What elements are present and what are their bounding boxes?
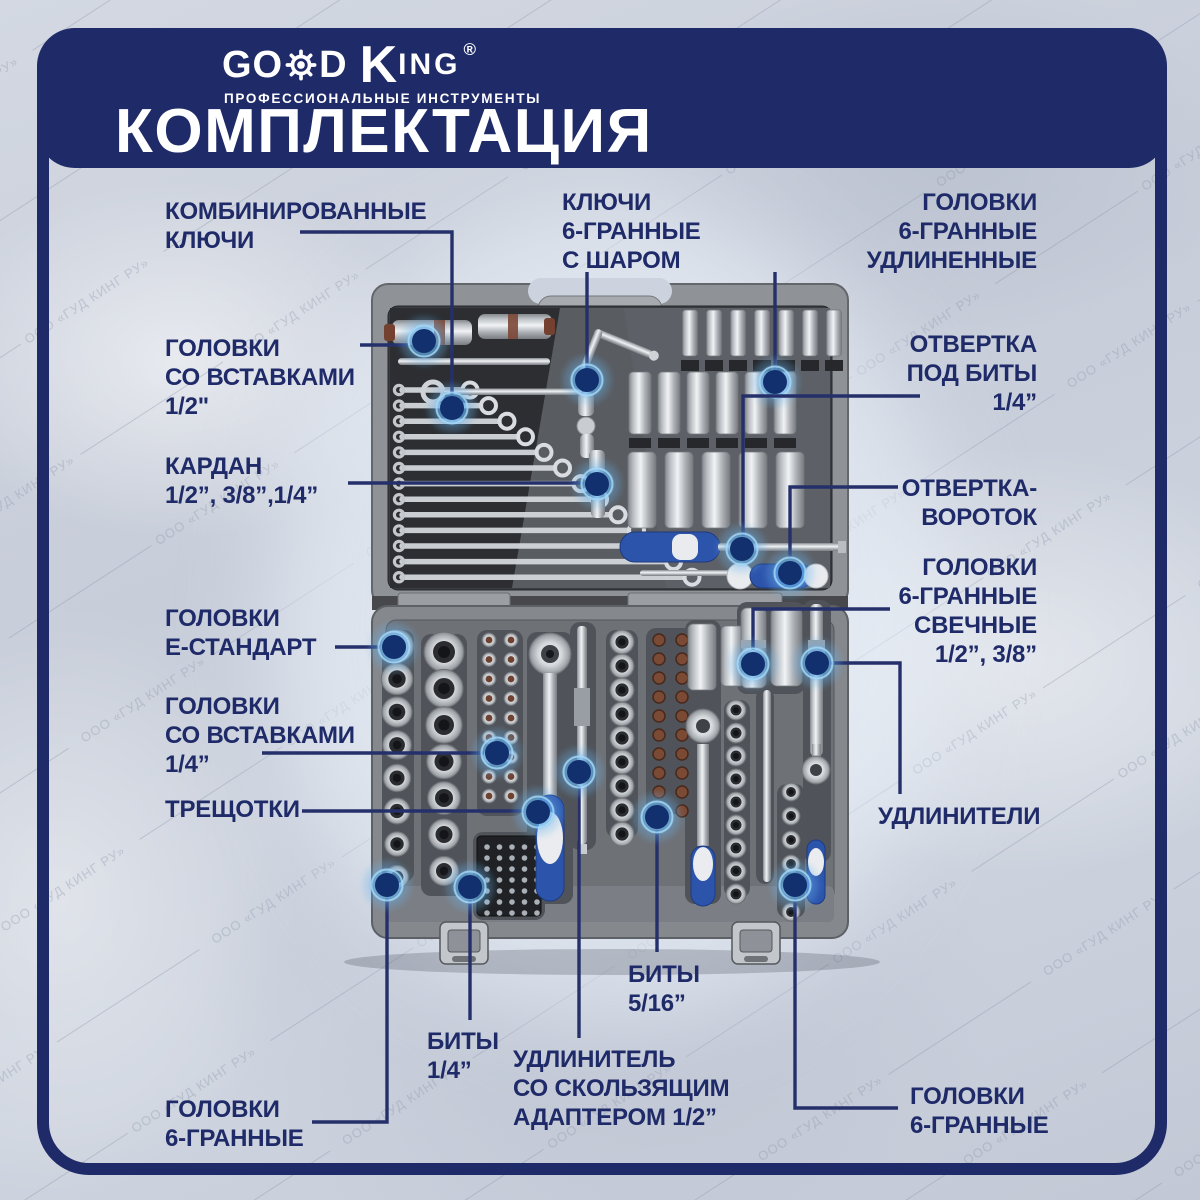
header-banner: GODKING® ПРОФЕССИОНАЛЬНЫЕ ИНСТРУМЕНТЫ КО… <box>37 28 1167 168</box>
marker-combination-wrenches <box>428 384 476 432</box>
brand-text-go: GO <box>222 46 283 84</box>
marker-ratchets <box>514 788 562 836</box>
brand-text-king-k: K <box>360 39 399 91</box>
marker-sockets-hex-right <box>771 861 819 909</box>
page-title: КОМПЛЕКТАЦИЯ <box>115 96 653 167</box>
marker-screwdriver-for-bits <box>718 525 766 573</box>
marker-sockets-e-standard <box>370 623 418 671</box>
brand-text-d: D <box>319 46 347 84</box>
marker-bits-5-16 <box>633 793 681 841</box>
marker-sockets-hex-long <box>751 358 799 406</box>
infographic-scene: ООО «ГУД КИНГ РУ» ООО «ГУД КИНГ РУ» <box>0 0 1200 1200</box>
marker-sockets-with-inserts-1-2 <box>400 317 448 365</box>
marker-extension-sliding-adapter <box>555 748 603 796</box>
marker-extensions <box>793 639 841 687</box>
brand-text-king-rest: ING <box>398 50 460 80</box>
brand-logo: GODKING® <box>222 42 477 88</box>
marker-sockets-with-inserts-1-4 <box>473 729 521 777</box>
marker-bits-1-4 <box>446 863 494 911</box>
marker-hex-keys-ball <box>563 356 611 404</box>
marker-spark-plug-sockets <box>729 640 777 688</box>
infographic-page: { "header": { "brand": { "go": "GO", "d"… <box>0 0 1200 1200</box>
marker-screwdriver-t-handle <box>766 549 814 597</box>
gear-icon <box>284 48 318 82</box>
marker-sockets-hex-left <box>363 861 411 909</box>
marker-cardan <box>573 460 621 508</box>
registered-mark: ® <box>463 41 477 58</box>
